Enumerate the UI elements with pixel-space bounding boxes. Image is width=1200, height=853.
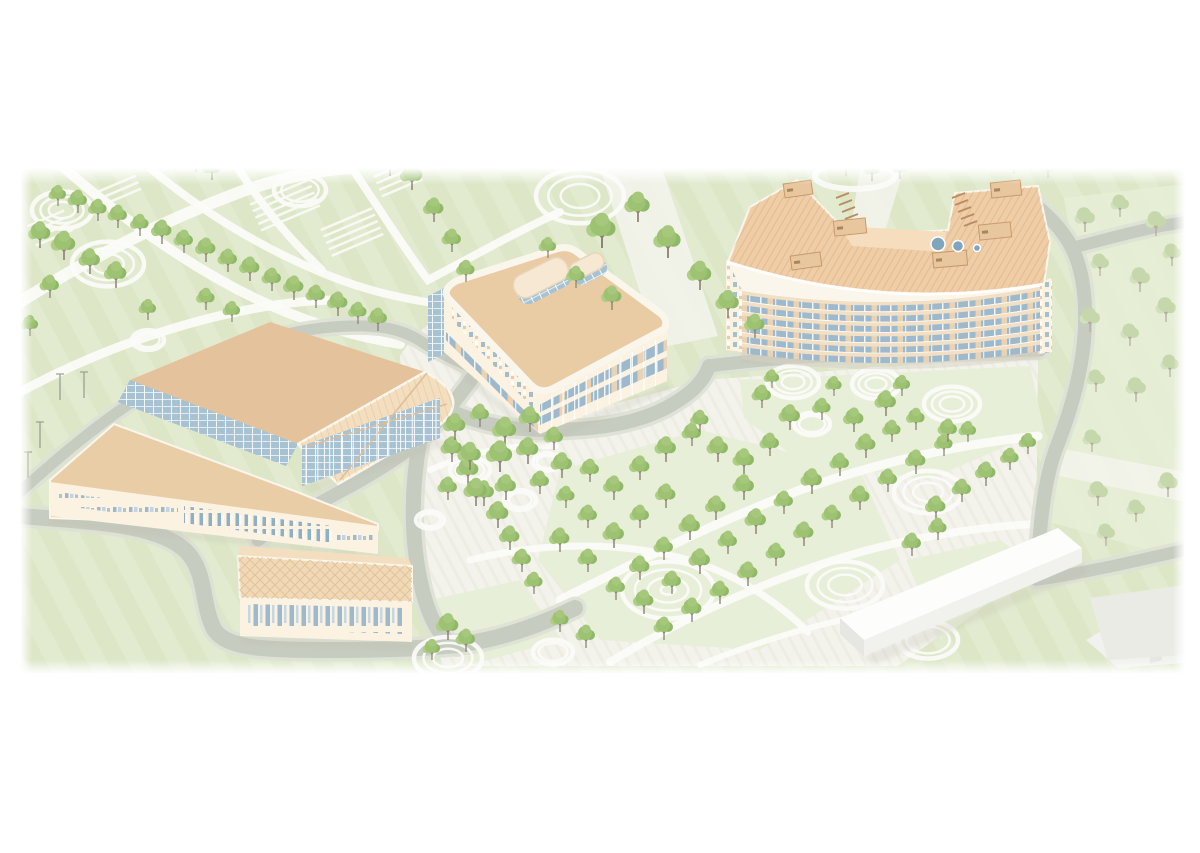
scene-root xyxy=(20,149,1196,680)
roof-vent xyxy=(953,241,964,252)
rooftop-box xyxy=(833,218,866,236)
facade-window-band xyxy=(248,604,404,634)
roof-vent xyxy=(931,237,945,251)
site-svg xyxy=(0,0,1200,853)
roof-vent xyxy=(974,245,981,252)
architectural-aerial-rendering xyxy=(0,0,1200,853)
west-corner-glass xyxy=(428,288,444,362)
gable-windows xyxy=(1038,277,1052,354)
rooftop-box xyxy=(932,250,967,268)
rooftop-box xyxy=(978,222,1011,240)
